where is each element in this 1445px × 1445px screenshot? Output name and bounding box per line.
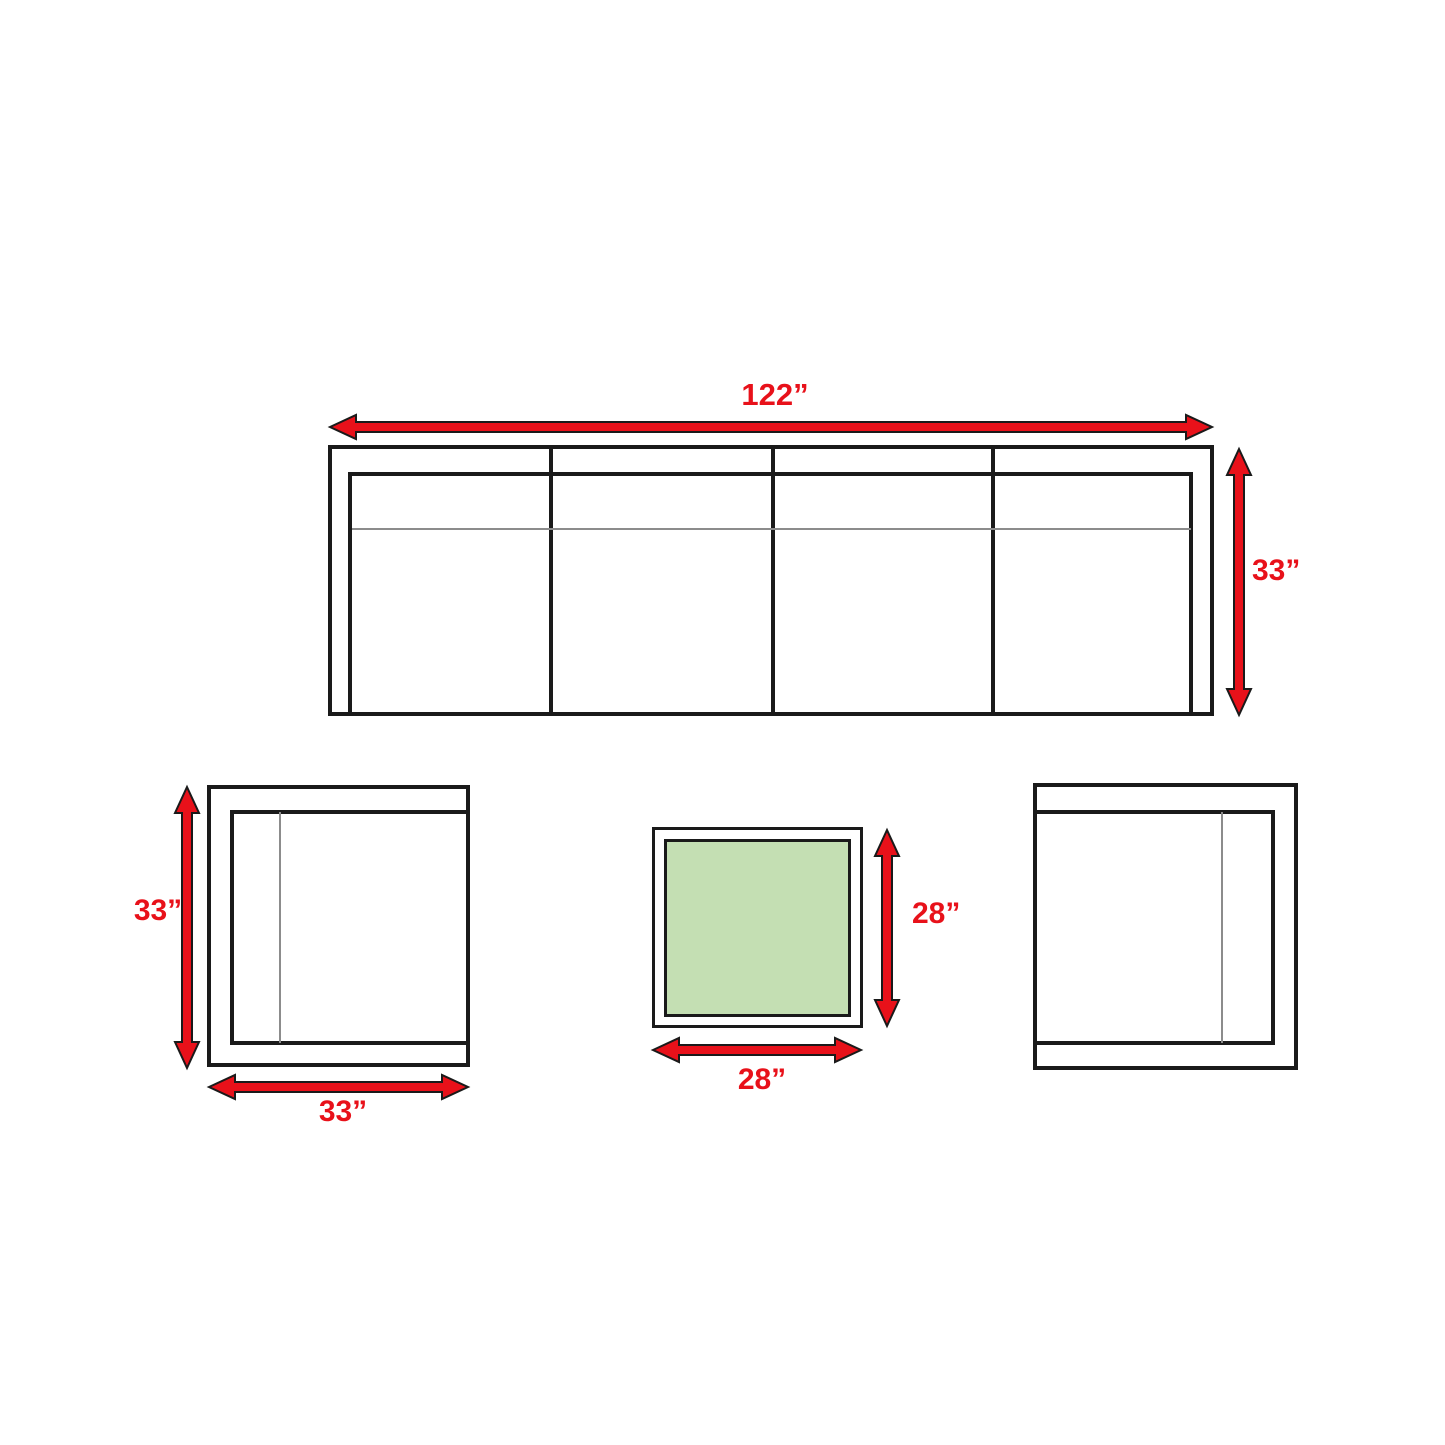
chair-right-cushion-line xyxy=(1221,812,1223,1043)
sofa-back-cushion-line xyxy=(352,528,1191,530)
arrow-shape xyxy=(875,830,899,1026)
furniture-dimension-diagram: 122” 33” 33” 33” 28” 28” xyxy=(0,0,1445,1445)
coffee-table-width-dimension-arrow xyxy=(651,1036,863,1064)
arrow-shape xyxy=(653,1038,861,1062)
chair-left-height-dimension-arrow xyxy=(173,785,201,1070)
arrow-shape xyxy=(175,787,199,1068)
chair-left-width-label: 33” xyxy=(319,1097,367,1127)
sofa-width-label: 122” xyxy=(741,379,808,410)
sofa-height-dimension-arrow xyxy=(1225,447,1253,717)
coffee-table-width-label: 28” xyxy=(738,1065,786,1095)
sofa-height-label: 33” xyxy=(1252,556,1300,586)
coffee-table-height-label: 28” xyxy=(912,899,960,929)
sofa-section-divider xyxy=(991,445,995,716)
sofa-section-divider xyxy=(771,445,775,716)
arrow-shape xyxy=(330,415,1212,439)
chair-left-seat-outline xyxy=(230,810,470,1045)
arrow-shape xyxy=(1227,449,1251,715)
chair-right-seat-outline xyxy=(1033,810,1275,1045)
sofa-section-divider xyxy=(549,445,553,716)
sofa-width-dimension-arrow xyxy=(328,413,1214,441)
chair-left-cushion-line xyxy=(279,812,281,1043)
coffee-table-height-dimension-arrow xyxy=(873,828,901,1028)
chair-left-height-label: 33” xyxy=(134,896,182,926)
coffee-table-top xyxy=(664,839,851,1017)
